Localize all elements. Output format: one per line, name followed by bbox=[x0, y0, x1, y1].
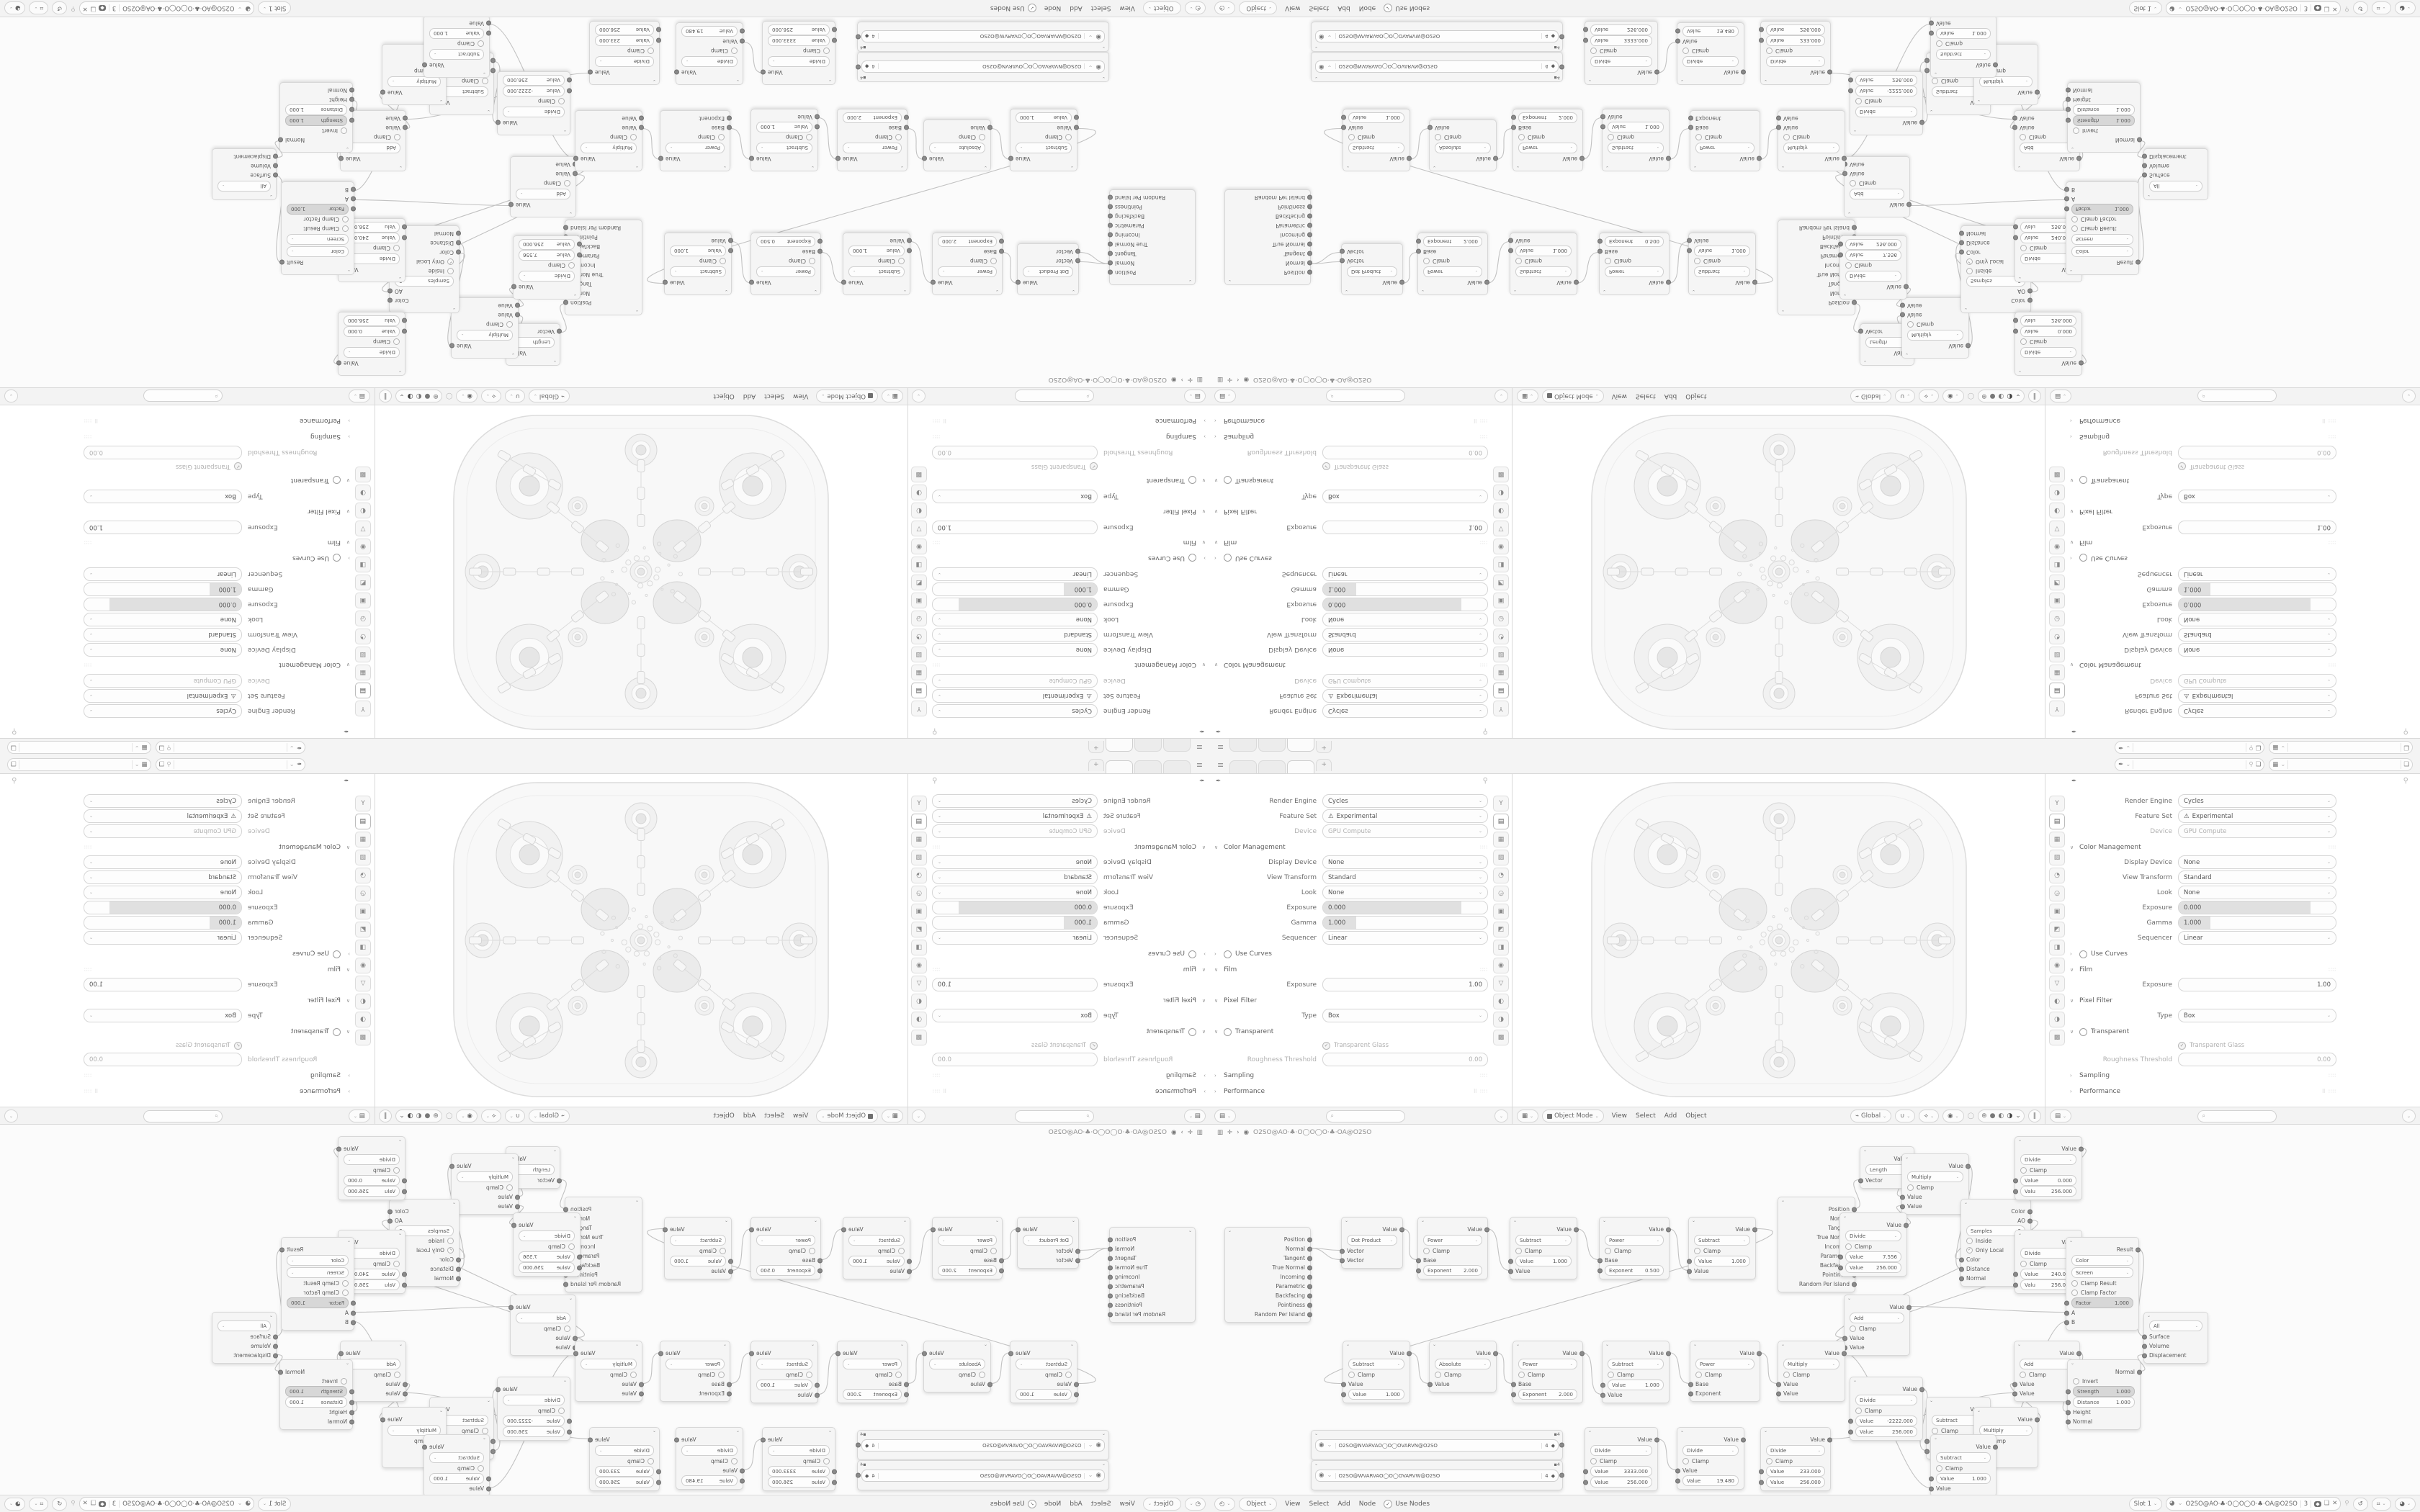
output-socket[interactable] bbox=[856, 1473, 861, 1478]
node-header[interactable]: ⌄ bbox=[933, 287, 1002, 294]
output-socket[interactable] bbox=[2027, 1209, 2033, 1214]
node-bump[interactable]: ⌄NormalInvertStrength1.000Distance1.000H… bbox=[2067, 82, 2141, 153]
shading-rendered-icon[interactable]: ◑ bbox=[408, 1112, 413, 1120]
input-socket[interactable] bbox=[567, 89, 572, 94]
node-grp2[interactable]: ⌄▪4◉⌄O2SO@WVARVAO◯O◯OVARVW@O2SO4◆ bbox=[857, 1460, 1109, 1490]
unlink-icon[interactable]: ✕ bbox=[2332, 1500, 2337, 1507]
node-header[interactable]: ⌄ bbox=[2066, 1238, 2138, 1245]
output-socket[interactable] bbox=[761, 70, 766, 75]
node-pow1[interactable]: ⌄ValuePower⌄ClampBaseExponent2.000 bbox=[932, 233, 1003, 295]
prop-field-view-transform[interactable]: Standard⌄ bbox=[2178, 870, 2336, 884]
shading-material-icon[interactable]: ◐ bbox=[416, 1112, 422, 1120]
prop-field-render-engine[interactable]: Cycles⌄ bbox=[2178, 704, 2336, 718]
value-field[interactable]: Value-2222.000 bbox=[503, 86, 565, 96]
output-socket[interactable] bbox=[1574, 1227, 1579, 1232]
gizmo-icon[interactable]: ◉⌄ bbox=[1942, 1110, 1963, 1122]
node-pow3[interactable]: ⌄ValuePower⌄ClampBaseExponent2.000 bbox=[837, 1341, 907, 1403]
node-pow1[interactable]: ⌄ValuePower⌄ClampBaseExponent2.000 bbox=[932, 1217, 1003, 1279]
node-div7[interactable]: ⌄ValueDivide⌄ClampValue233.000Value256.0… bbox=[589, 21, 660, 85]
copy-icon[interactable]: ❏ bbox=[159, 744, 165, 751]
properties-tab-scene[interactable]: ◔ bbox=[911, 868, 927, 883]
node-menu-view[interactable]: View bbox=[1119, 5, 1134, 12]
view-layer-selector[interactable]: ▦⌄ ❏ bbox=[7, 741, 151, 754]
input-socket[interactable] bbox=[1074, 1382, 1079, 1387]
prop-field-roughness-threshold[interactable]: 0.00 bbox=[932, 1053, 1098, 1066]
node-checkbox[interactable]: Clamp bbox=[373, 245, 400, 251]
node-header[interactable]: ⌄ bbox=[565, 1197, 642, 1205]
unlink-icon[interactable]: ✕ bbox=[2332, 5, 2337, 12]
collapse-icon[interactable]: ⌄ bbox=[1692, 1218, 1695, 1223]
operation-dropdown[interactable]: Dot Product⌄ bbox=[1023, 1235, 1073, 1246]
properties-tab-material[interactable]: ◑ bbox=[1493, 1012, 1509, 1027]
preview-sphere-icon[interactable]: ◕⌄ bbox=[4, 2, 25, 15]
workspace-tab[interactable] bbox=[1134, 760, 1162, 773]
checkbox-transparent-glass[interactable]: ✓Transparent Glass bbox=[932, 461, 1098, 472]
value-field[interactable]: Strength1.000 bbox=[285, 1386, 347, 1397]
operation-dropdown[interactable]: Subtract⌄ bbox=[670, 266, 726, 277]
input-socket[interactable] bbox=[639, 1391, 644, 1396]
value-field[interactable]: Value1.000 bbox=[1936, 1473, 1991, 1484]
properties-tab-data[interactable]: ◐ bbox=[911, 503, 927, 518]
scene-selector[interactable]: ✒⌄ ⚲ ❏ bbox=[2115, 758, 2264, 771]
properties-tab-data[interactable]: ◐ bbox=[1493, 994, 1509, 1009]
slot-dropdown[interactable]: Slot 1⌄ bbox=[2129, 1498, 2162, 1511]
value-field[interactable]: Value19.480 bbox=[1682, 1475, 1739, 1486]
operation-dropdown[interactable]: Power⌄ bbox=[1518, 143, 1577, 153]
pin-icon[interactable]: ⚲ bbox=[71, 1500, 75, 1507]
input-socket[interactable] bbox=[402, 318, 407, 323]
node-pow4[interactable]: ⌄ValuePower⌄ClampBaseExponent bbox=[1690, 1341, 1760, 1402]
panel-grip-icon[interactable]: ∷∷ bbox=[932, 967, 940, 973]
node-header[interactable]: ⌄ bbox=[1677, 77, 1744, 84]
node-subB[interactable]: ⌄ValueSubtract⌄ClampValue1.000Value bbox=[664, 1217, 732, 1279]
input-socket[interactable] bbox=[456, 1257, 461, 1262]
input-socket[interactable] bbox=[987, 125, 992, 130]
node-checkbox[interactable]: Clamp bbox=[2020, 1372, 2046, 1378]
output-socket[interactable] bbox=[1307, 1246, 1312, 1251]
value-field[interactable]: Value256.000 bbox=[1855, 75, 1917, 86]
panel-toggle[interactable] bbox=[1188, 477, 1196, 485]
input-socket[interactable] bbox=[999, 249, 1004, 254]
panel-header-pixel-filter[interactable]: ∨Pixel Filter bbox=[84, 505, 350, 518]
node-menu-node[interactable]: Node bbox=[1044, 5, 1062, 12]
prop-field-exposure[interactable]: 1.00 bbox=[1322, 978, 1488, 991]
node-header[interactable]: ⌄ bbox=[665, 1218, 731, 1225]
copy-icon[interactable]: ❏ bbox=[2256, 762, 2262, 768]
panel-header-transparent[interactable]: ∨Transparent bbox=[932, 1025, 1206, 1038]
output-socket[interactable] bbox=[279, 260, 284, 265]
new-workspace-button[interactable]: + bbox=[1088, 759, 1104, 771]
value-field[interactable]: Distance1.000 bbox=[285, 1397, 347, 1408]
properties-tab-object[interactable]: ▣ bbox=[911, 904, 927, 919]
output-socket[interactable] bbox=[1108, 223, 1113, 228]
node-checkbox[interactable]: Clamp bbox=[1850, 1326, 1876, 1332]
node-div5[interactable]: ⌄ValueDivide⌄ClampValue3333.000Value256.… bbox=[762, 1427, 835, 1491]
input-socket[interactable] bbox=[1759, 1469, 1764, 1474]
prop-field-sequencer[interactable]: Linear⌄ bbox=[2178, 567, 2336, 581]
node-subB[interactable]: ⌄ValueSubtract⌄ClampValue1.000Value bbox=[1688, 1217, 1756, 1279]
editor-type-icon[interactable]: ◴⌄ bbox=[1185, 1498, 1206, 1511]
value-field[interactable]: Exponent2.000 bbox=[1423, 1265, 1482, 1276]
value-field[interactable]: Value1.000 bbox=[429, 1473, 484, 1484]
input-socket[interactable] bbox=[1776, 1382, 1781, 1387]
node-checkbox[interactable]: Clamp bbox=[711, 48, 738, 54]
input-socket[interactable] bbox=[1924, 1439, 1930, 1444]
operation-dropdown[interactable]: Subtract⌄ bbox=[1936, 49, 1991, 60]
node-header[interactable]: ⌄ bbox=[1902, 351, 1968, 358]
value-field[interactable]: Value-2222.000 bbox=[1855, 86, 1917, 96]
collapse-icon[interactable]: ⌄ bbox=[1605, 165, 1609, 170]
node-header[interactable]: ⌄ bbox=[452, 351, 518, 358]
panel-toggle[interactable] bbox=[2079, 1028, 2087, 1036]
collapse-icon[interactable]: ⌄ bbox=[1934, 1436, 1937, 1441]
value-field[interactable]: Value3333.000 bbox=[1590, 35, 1652, 46]
node-header[interactable]: ⌄ bbox=[1689, 287, 1755, 294]
prop-field-display-device[interactable]: None⌄ bbox=[2178, 855, 2336, 869]
input-socket[interactable] bbox=[999, 239, 1004, 244]
overlay-toggle-icon[interactable]: ◯ bbox=[446, 1113, 453, 1120]
collapse-icon[interactable]: ⌄ bbox=[1977, 99, 1981, 104]
shader-type-dropdown[interactable]: Object⌄ bbox=[1143, 2, 1181, 15]
filter-caret[interactable]: ⌄ bbox=[912, 390, 926, 402]
collapse-icon[interactable]: ⌄ bbox=[2071, 1361, 2074, 1366]
input-socket[interactable] bbox=[349, 1389, 354, 1394]
filter-caret[interactable]: ⌄ bbox=[2402, 390, 2416, 402]
node-menu-add[interactable]: Add bbox=[1337, 5, 1350, 12]
node-checkbox[interactable]: Clamp bbox=[1682, 1458, 1709, 1464]
properties-tab-render[interactable]: ▤ bbox=[1493, 683, 1509, 698]
node-pow2[interactable]: ⌄ValuePower⌄ClampBaseExponent0.500 bbox=[750, 1217, 821, 1279]
collapse-icon[interactable]: ⌄ bbox=[487, 1398, 490, 1403]
collapse-icon[interactable]: ⌄ bbox=[1228, 279, 1232, 284]
node-checkbox[interactable]: Clamp bbox=[538, 1408, 565, 1414]
properties-tab-view-layer[interactable]: ▧ bbox=[355, 850, 371, 865]
node-header[interactable]: ⌄ bbox=[341, 1341, 405, 1349]
node-subC[interactable]: ⌄ValueSubtract⌄ClampValueValue1.000 bbox=[1010, 1341, 1077, 1403]
node-abs[interactable]: ⌄ValueAbsolute⌄ClampValue bbox=[1429, 120, 1497, 171]
material-name[interactable]: O2SO@AO·♣·O◯O◯O·♣·OA@O2SO bbox=[2186, 1500, 2298, 1508]
prop-field-gamma[interactable]: 1.000 bbox=[932, 582, 1098, 596]
prop-field-type[interactable]: Box⌄ bbox=[2178, 490, 2336, 503]
node-div6[interactable]: ⌄ValueDivide⌄ClampValueValue19.480 bbox=[1677, 22, 1744, 85]
properties-tab-data[interactable]: ◐ bbox=[2049, 994, 2065, 1009]
group-datablock[interactable]: ◉⌄O2SO@WVARVAO◯O◯OVARVW@O2SO4◆ bbox=[861, 30, 1105, 42]
collapse-icon[interactable]: ⌄ bbox=[984, 165, 987, 170]
input-socket[interactable] bbox=[1687, 238, 1692, 243]
input-socket[interactable] bbox=[402, 1282, 407, 1287]
value-field[interactable]: Value256.000 bbox=[519, 239, 575, 250]
node-checkbox[interactable]: Clamp bbox=[959, 1372, 985, 1378]
prop-field-render-engine[interactable]: Cycles⌄ bbox=[932, 704, 1098, 718]
panel-header-film[interactable]: ∨Film∷∷ bbox=[84, 963, 350, 976]
search-input[interactable]: ⌕ bbox=[2197, 1110, 2277, 1122]
prop-field-type[interactable]: Box⌄ bbox=[932, 490, 1098, 503]
node-header[interactable]: ⌄ bbox=[511, 1295, 575, 1302]
collapse-icon[interactable]: ⌄ bbox=[569, 211, 573, 216]
output-socket[interactable] bbox=[1307, 251, 1312, 256]
editor-type-icon[interactable]: ▤⌄ bbox=[1214, 390, 1236, 402]
collapse-icon[interactable]: ⌄ bbox=[1070, 1342, 1074, 1347]
view-layer-name-value[interactable] bbox=[2287, 760, 2401, 769]
node-checkbox[interactable]: Clamp bbox=[374, 1372, 400, 1378]
collapse-icon[interactable]: ⌄ bbox=[1692, 289, 1695, 294]
node-checkbox[interactable]: Clamp Result bbox=[2071, 1280, 2117, 1287]
prop-field-type[interactable]: Box⌄ bbox=[84, 1009, 242, 1022]
group-datablock[interactable]: ◉⌄O2SO@WVARVAO◯O◯OVARVW@O2SO4◆ bbox=[861, 1470, 1105, 1482]
output-socket[interactable] bbox=[1484, 1227, 1489, 1232]
output-socket[interactable] bbox=[922, 156, 927, 161]
viewport-menu-object[interactable]: Object bbox=[713, 1112, 734, 1120]
value-field[interactable]: Value1.000 bbox=[1348, 1389, 1404, 1400]
node-pow4[interactable]: ⌄ValuePower⌄ClampBaseExponent bbox=[1690, 110, 1760, 171]
operation-dropdown[interactable]: Subtract⌄ bbox=[1348, 1359, 1404, 1369]
node-header[interactable]: ⌄ bbox=[430, 1398, 493, 1405]
input-socket[interactable] bbox=[1511, 125, 1516, 130]
properties-tab-modifiers[interactable]: ◩ bbox=[2049, 575, 2065, 590]
panel-header-color-management[interactable]: ∨Color Management∷∷ bbox=[84, 841, 350, 854]
node-header[interactable]: ⌄▪4 bbox=[858, 1431, 1108, 1438]
panel-grip-icon[interactable]: ∷∷ bbox=[84, 845, 91, 850]
properties-tab-physics[interactable]: ◉ bbox=[355, 539, 371, 554]
collapse-icon[interactable]: ⌄ bbox=[569, 1296, 573, 1301]
operation-dropdown[interactable]: All⌄ bbox=[218, 1320, 271, 1331]
editor-type-icon[interactable]: ◴⌄ bbox=[1214, 1498, 1235, 1511]
output-socket[interactable] bbox=[922, 1351, 927, 1356]
panel-header-use-curves[interactable]: ›Use Curves bbox=[1214, 552, 1488, 564]
properties-tab-material[interactable]: ◑ bbox=[2049, 485, 2065, 500]
scene-selector[interactable]: ✒⌄ ⚲ ❏ bbox=[156, 741, 305, 754]
properties-tab-texture[interactable]: ▩ bbox=[911, 467, 927, 482]
properties-tab-modifiers[interactable]: ◩ bbox=[355, 922, 371, 937]
panel-header-transparent[interactable]: ∨Transparent bbox=[2070, 1025, 2336, 1038]
output-socket[interactable] bbox=[496, 1387, 501, 1392]
input-socket[interactable] bbox=[907, 238, 912, 243]
value-field[interactable]: Value1.000 bbox=[1515, 246, 1572, 256]
node-checkbox[interactable]: Clamp bbox=[544, 1326, 570, 1332]
collapse-icon[interactable]: ⌄ bbox=[398, 1231, 402, 1236]
collapse-icon[interactable]: ⌄ bbox=[1188, 279, 1192, 284]
operation-dropdown[interactable]: All⌄ bbox=[2149, 1320, 2202, 1331]
output-socket[interactable] bbox=[508, 1305, 514, 1310]
node-checkbox[interactable]: Clamp bbox=[1907, 321, 1934, 328]
input-socket[interactable] bbox=[1848, 1418, 1853, 1423]
prop-field-feature-set[interactable]: ⚠Experimental⌄ bbox=[84, 809, 242, 823]
collapse-icon[interactable]: ⌄ bbox=[1588, 78, 1592, 84]
input-socket[interactable] bbox=[1416, 249, 1421, 254]
output-socket[interactable] bbox=[1108, 1246, 1113, 1251]
node-checkbox[interactable]: Clamp bbox=[1783, 1372, 1810, 1378]
input-socket[interactable] bbox=[1075, 249, 1080, 254]
properties-tab-scene[interactable]: ◔ bbox=[2049, 868, 2065, 883]
operation-dropdown[interactable]: Multiply⌄ bbox=[581, 143, 637, 153]
output-socket[interactable] bbox=[1307, 1312, 1312, 1317]
output-socket[interactable] bbox=[1484, 280, 1489, 285]
input-socket[interactable] bbox=[1597, 1258, 1603, 1263]
input-socket[interactable] bbox=[1924, 1449, 1930, 1454]
input-socket[interactable] bbox=[1075, 1248, 1080, 1254]
output-socket[interactable] bbox=[387, 1209, 393, 1214]
operation-dropdown[interactable]: Multiply⌄ bbox=[581, 1359, 637, 1369]
node-checkbox[interactable]: Clamp bbox=[1045, 134, 1072, 140]
node-header[interactable]: ⌄ bbox=[590, 77, 659, 84]
panel-toggle[interactable] bbox=[1224, 554, 1232, 562]
input-socket[interactable] bbox=[728, 248, 733, 253]
input-socket[interactable] bbox=[1511, 1382, 1516, 1387]
properties-tab-object[interactable]: ▣ bbox=[2049, 593, 2065, 608]
operation-dropdown[interactable]: Subtract⌄ bbox=[1016, 1359, 1072, 1369]
properties-tab-object[interactable]: ▣ bbox=[355, 593, 371, 608]
input-socket[interactable] bbox=[639, 116, 644, 121]
node-header[interactable]: ⌄ bbox=[382, 1408, 446, 1415]
output-socket[interactable] bbox=[511, 1223, 516, 1228]
output-socket[interactable] bbox=[1108, 261, 1113, 266]
prop-field-exposure[interactable]: 0.000 bbox=[1322, 901, 1488, 914]
output-socket[interactable] bbox=[931, 280, 936, 285]
input-socket[interactable] bbox=[1688, 1382, 1693, 1387]
value-field[interactable]: Exponent2.000 bbox=[1518, 1389, 1577, 1400]
output-socket[interactable] bbox=[1559, 1443, 1564, 1448]
prop-field-type[interactable]: Box⌄ bbox=[2178, 1009, 2336, 1022]
slot-dropdown[interactable]: Slot 1⌄ bbox=[258, 1498, 291, 1511]
shading-material-icon[interactable]: ◐ bbox=[1998, 1112, 2004, 1120]
input-socket[interactable] bbox=[1848, 78, 1853, 83]
operation-dropdown[interactable]: Divide⌄ bbox=[2020, 1154, 2076, 1165]
refresh-icon[interactable]: ↺ bbox=[2353, 2, 2368, 15]
node-header[interactable]: ⌄ bbox=[1931, 1435, 1996, 1442]
node-div2[interactable]: ⌄ValueDivide⌄ClampValue0.000Valu256.000 bbox=[2015, 1136, 2082, 1200]
operation-dropdown[interactable]: Dot Product⌄ bbox=[1347, 266, 1397, 277]
input-socket[interactable] bbox=[402, 225, 407, 230]
node-checkbox[interactable]: Clamp bbox=[457, 1465, 484, 1472]
node-mix[interactable]: ⌄ResultColor⌄Screen⌄Clamp ResultClamp Fa… bbox=[2066, 181, 2139, 275]
output-socket[interactable] bbox=[1752, 1227, 1757, 1232]
editor-type-icon[interactable]: ▤⌄ bbox=[349, 390, 370, 402]
scene-selector[interactable]: ✒⌄ ⚲ ❏ bbox=[2115, 741, 2264, 754]
collapse-icon[interactable]: ⌄ bbox=[1930, 109, 1933, 114]
prop-field-exposure[interactable]: 0.000 bbox=[84, 598, 242, 611]
node-checkbox[interactable]: Clamp bbox=[1348, 1372, 1375, 1378]
copy-icon[interactable]: ❏ bbox=[2324, 1500, 2330, 1507]
panel-header-use-curves[interactable]: ›Use Curves bbox=[932, 552, 1206, 564]
node-g1[interactable]: ⌄PositionNormalTangentTrue NormalIncomin… bbox=[1224, 1227, 1311, 1323]
input-socket[interactable] bbox=[1838, 253, 1843, 258]
properties-tab-particles[interactable]: ◨ bbox=[355, 557, 371, 572]
operation-dropdown[interactable]: Divide⌄ bbox=[1590, 1445, 1652, 1456]
prop-field-exposure[interactable]: 0.000 bbox=[2178, 901, 2336, 914]
scene-name-value[interactable] bbox=[2133, 760, 2246, 769]
input-socket[interactable] bbox=[402, 235, 407, 240]
node-div4[interactable]: ⌄ValueDivide⌄ClampValue-2222.000Value256… bbox=[497, 1377, 570, 1441]
search-input[interactable]: ⌕ bbox=[143, 1110, 223, 1122]
node-header[interactable]: ⌄ bbox=[424, 70, 489, 77]
node-checkbox[interactable]: Clamp bbox=[699, 1248, 726, 1254]
operation-dropdown[interactable]: Subtract⌄ bbox=[1694, 266, 1750, 277]
pause-button[interactable]: ‖ bbox=[379, 1110, 392, 1122]
node-checkbox[interactable]: Clamp bbox=[1936, 1465, 1963, 1472]
input-socket[interactable] bbox=[577, 1265, 582, 1270]
editor-type-icon[interactable]: ▦⌄ bbox=[1517, 1110, 1538, 1122]
collapse-icon[interactable]: ⌄ bbox=[984, 1342, 987, 1347]
node-checkbox[interactable]: Clamp bbox=[1518, 1372, 1545, 1378]
node-out[interactable]: ⌄All⌄SurfaceVolumeDisplacement bbox=[2143, 148, 2208, 200]
prop-field-gamma[interactable]: 1.000 bbox=[2178, 582, 2336, 596]
input-socket[interactable] bbox=[1688, 1391, 1693, 1396]
node-header[interactable]: ⌄ bbox=[1110, 1228, 1195, 1235]
node-checkbox[interactable]: Clamp bbox=[789, 1248, 815, 1254]
node-header[interactable]: ⌄ bbox=[341, 163, 405, 171]
value-field[interactable]: Value1.000 bbox=[848, 246, 905, 256]
prop-field-sequencer[interactable]: Linear⌄ bbox=[932, 931, 1098, 945]
properties-tab-view-layer[interactable]: ▧ bbox=[1493, 850, 1509, 865]
prop-field-sequencer[interactable]: Linear⌄ bbox=[84, 931, 242, 945]
filter-caret[interactable]: ⌄ bbox=[1494, 1110, 1508, 1122]
output-socket[interactable] bbox=[1407, 156, 1412, 161]
collapse-icon[interactable]: ⌄ bbox=[1314, 76, 1318, 81]
input-socket[interactable] bbox=[639, 125, 644, 130]
properties-tab-physics[interactable]: ◉ bbox=[911, 539, 927, 554]
input-socket[interactable] bbox=[815, 1392, 820, 1398]
material-user-count[interactable]: 3 bbox=[109, 1500, 120, 1508]
node-header[interactable]: ⌄ bbox=[390, 1200, 459, 1207]
snap-magnet-icon[interactable]: ∪⌄ bbox=[1895, 390, 1915, 402]
node-pow1[interactable]: ⌄ValuePower⌄ClampBaseExponent2.000 bbox=[1417, 233, 1488, 295]
node-header[interactable]: ⌄ bbox=[2144, 192, 2208, 199]
fake-user-shield-icon[interactable]: ◆ bbox=[99, 1501, 105, 1507]
proportional-editing-icon[interactable]: ⟡⌄ bbox=[1919, 1110, 1939, 1122]
input-socket[interactable] bbox=[456, 231, 461, 236]
panel-header-sampling[interactable]: ›Sampling∷∷ bbox=[2070, 1069, 2336, 1082]
input-socket[interactable] bbox=[2142, 163, 2147, 168]
input-socket[interactable] bbox=[1340, 1248, 1345, 1254]
unlink-icon[interactable]: ✕ bbox=[83, 1500, 88, 1507]
output-socket[interactable] bbox=[1108, 1265, 1113, 1270]
input-socket[interactable] bbox=[403, 116, 408, 121]
output-socket[interactable] bbox=[336, 1146, 341, 1151]
copy-icon[interactable]: ❏ bbox=[2256, 744, 2262, 751]
node-div7[interactable]: ⌄ValueDivide⌄ClampValue233.000Value256.0… bbox=[1760, 1427, 1831, 1491]
input-socket[interactable] bbox=[573, 1336, 578, 1341]
input-socket[interactable] bbox=[1341, 115, 1346, 120]
node-subD[interactable]: ⌄ValueSubtract⌄ClampValue1.000Value bbox=[750, 1341, 818, 1403]
input-socket[interactable] bbox=[1959, 250, 1964, 255]
node-header[interactable]: ⌄ bbox=[1585, 77, 1657, 84]
operation-dropdown[interactable]: Divide⌄ bbox=[1682, 56, 1739, 67]
node-add1[interactable]: ⌄ValueAdd⌄ClampValueValue bbox=[510, 156, 576, 217]
overlay-toggle-icon[interactable]: ◯ bbox=[446, 393, 453, 400]
input-socket[interactable] bbox=[740, 1468, 745, 1473]
collapse-icon[interactable]: ⌄ bbox=[1314, 45, 1318, 50]
operation-dropdown[interactable]: Divide⌄ bbox=[519, 1230, 575, 1241]
node-div6[interactable]: ⌄ValueDivide⌄ClampValueValue19.480 bbox=[676, 22, 743, 85]
node-menu-view[interactable]: View bbox=[1119, 1500, 1134, 1508]
collapse-icon[interactable]: ⌄ bbox=[1977, 1408, 1981, 1413]
properties-tab-particles[interactable]: ◨ bbox=[2049, 557, 2065, 572]
output-socket[interactable] bbox=[749, 1227, 754, 1232]
operation-dropdown[interactable]: Subtract⌄ bbox=[429, 1452, 484, 1463]
viewport-menu-view[interactable]: View bbox=[1612, 1112, 1627, 1120]
node-out[interactable]: ⌄All⌄SurfaceVolumeDisplacement bbox=[212, 148, 277, 200]
input-socket[interactable] bbox=[656, 27, 661, 32]
output-socket[interactable] bbox=[1574, 280, 1579, 285]
input-socket[interactable] bbox=[1687, 1259, 1692, 1264]
input-socket[interactable] bbox=[1597, 239, 1603, 244]
properties-tab-material[interactable]: ◑ bbox=[1493, 485, 1509, 500]
node-header[interactable]: ⌄ bbox=[1342, 287, 1402, 294]
node-header[interactable]: ⌄ bbox=[575, 1341, 642, 1349]
operation-dropdown[interactable]: Screen⌄ bbox=[2071, 234, 2133, 245]
output-socket[interactable] bbox=[563, 225, 568, 230]
collapse-icon[interactable]: ⌄ bbox=[1853, 1378, 1857, 1383]
